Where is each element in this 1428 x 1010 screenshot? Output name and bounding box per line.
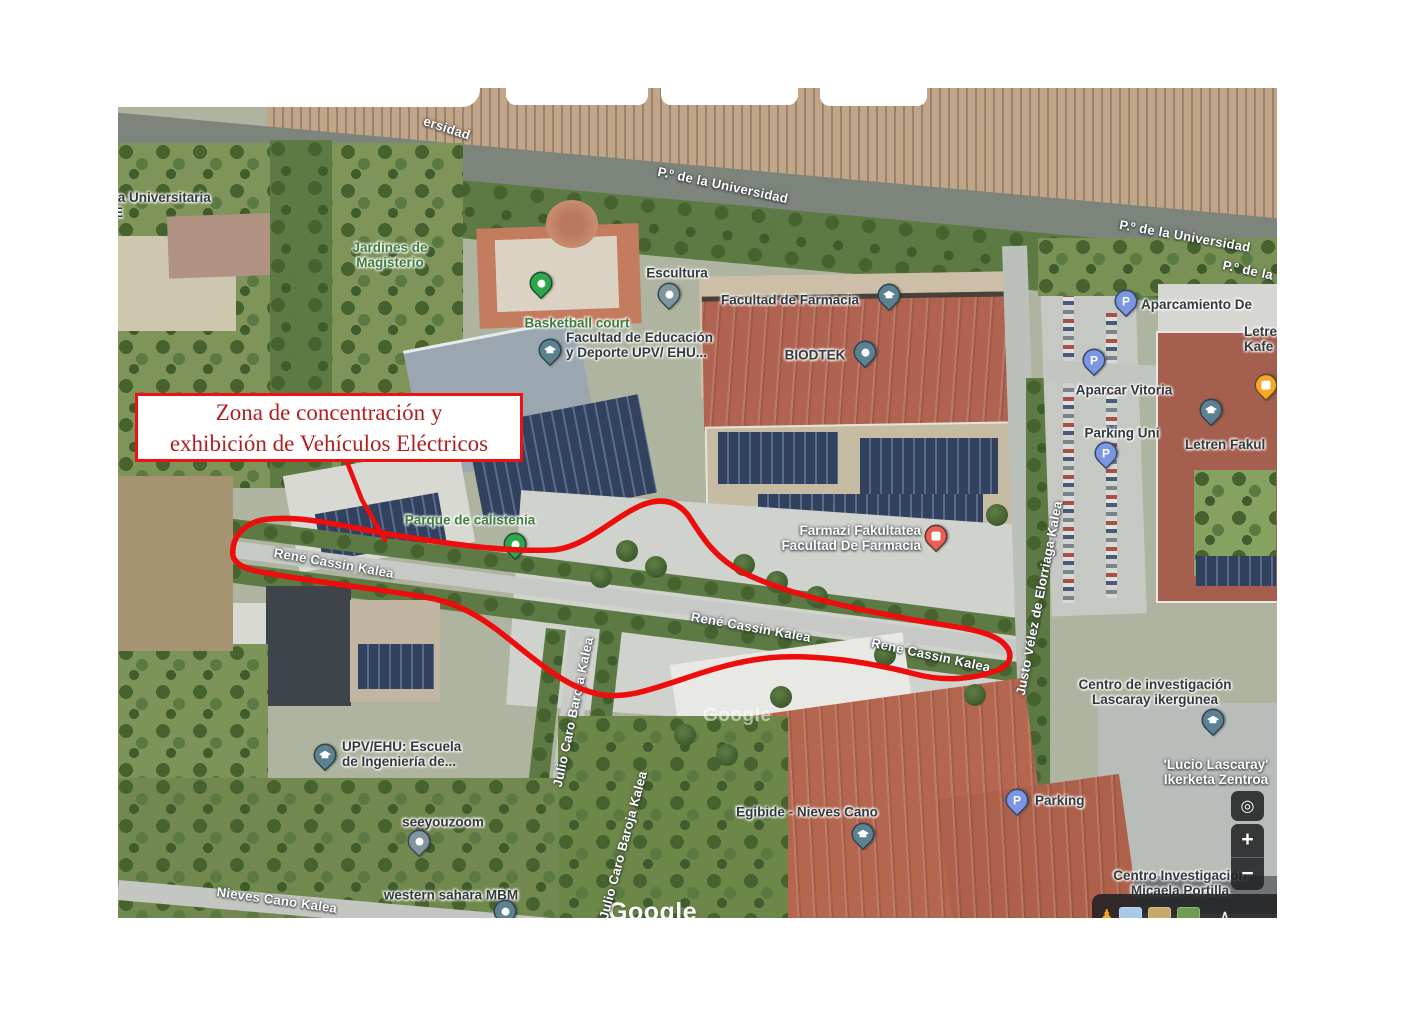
poi-line: Farmazi Fakultatea: [721, 523, 921, 538]
parking-pin-parking[interactable]: P: [1001, 784, 1034, 817]
poi-label-escultura[interactable]: Escultura: [646, 266, 708, 281]
education-pin-upv[interactable]: [309, 739, 342, 772]
poi-line: y Deporte UPV/ EHU...: [566, 345, 713, 360]
poi-line: de Ingeniería de...: [342, 754, 461, 769]
top-cutout-strip: [118, 88, 480, 107]
poi-line: UPV/EHU: Escuela: [342, 739, 461, 754]
imagery-thumbnail-2[interactable]: [1148, 907, 1171, 919]
poi-label-lucio-lascaray[interactable]: 'Lucio Lascaray' Ikerketa Zentroa: [1164, 757, 1269, 787]
poi-line: Letre: [1244, 324, 1277, 339]
parking-pin-aparcamiento[interactable]: P: [1110, 285, 1143, 318]
upv-solar: [358, 644, 434, 689]
annotation-box: Zona de concentración y exhibición de Ve…: [135, 393, 523, 462]
my-location-button[interactable]: ◎: [1231, 791, 1264, 821]
tree: [733, 554, 755, 576]
poi-line: Kafe: [1244, 339, 1277, 354]
top-cutout-tab: [820, 88, 927, 106]
annotation-line-1: Zona de concentración y: [216, 397, 443, 428]
solar-panel-1: [718, 432, 838, 484]
parking-icon: P: [1095, 442, 1118, 465]
zoom-out-button[interactable]: −: [1231, 857, 1264, 891]
poi-line: Facultad de Educación: [566, 330, 713, 345]
parking-pin-parking-uni[interactable]: P: [1090, 437, 1123, 470]
letren-solar: [1196, 556, 1276, 586]
tree: [770, 686, 792, 708]
pharmacy-pin-farmazi[interactable]: [920, 520, 953, 553]
poi-label-universitaria[interactable]: ia Universitaria E: [118, 190, 211, 220]
park-pin-basketball[interactable]: [525, 267, 558, 300]
zoom-controls: + −: [1231, 824, 1264, 890]
poi-label-basketball[interactable]: Basketball court: [524, 316, 629, 331]
brown-field-left: [118, 476, 233, 651]
poi-label-upv[interactable]: UPV/EHU: Escuela de Ingeniería de...: [342, 739, 461, 769]
parking-icon: P: [1083, 349, 1106, 372]
poi-pin-escultura[interactable]: [653, 278, 686, 311]
parking-icon: P: [1006, 789, 1029, 812]
cafe-pin-letren-kafetegia[interactable]: [1250, 369, 1277, 402]
poi-line: Centro Investigación: [1113, 868, 1247, 883]
poi-line: E: [118, 205, 211, 220]
poi-label-aparcar-vitoria[interactable]: Aparcar Vitoria: [1076, 383, 1173, 398]
education-pin-letren[interactable]: [1195, 394, 1228, 427]
parking-icon: P: [1115, 290, 1138, 313]
tree: [964, 684, 986, 706]
annotation-line-2: exhibición de Vehículos Eléctricos: [170, 428, 488, 459]
tree: [986, 504, 1008, 526]
poi-label-jardines[interactable]: Jardines de Magisterio: [352, 240, 427, 270]
poi-label-seeyouzoom[interactable]: seeyouzoom: [402, 815, 484, 830]
car-row-1: [1063, 293, 1074, 603]
poi-label-lascaray[interactable]: Centro de investigación Lascaray ikergun…: [1078, 677, 1231, 707]
zoom-in-button[interactable]: +: [1231, 824, 1264, 857]
poi-label-letren-fakultatea[interactable]: Letren Fakul: [1185, 437, 1265, 452]
poi-label-egibide[interactable]: Egibide - Nieves Cano: [736, 805, 878, 820]
poi-label-educacion[interactable]: Facultad de Educación y Deporte UPV/ EHU…: [566, 330, 713, 360]
poi-line: Facultad De Farmacia: [721, 538, 921, 553]
education-pin-lascaray[interactable]: [1197, 704, 1230, 737]
poi-pin-seeyouzoom[interactable]: [403, 825, 436, 858]
education-pin-farmacia[interactable]: [873, 279, 906, 312]
poi-line: Jardines de: [352, 240, 427, 255]
poi-label-biodtek[interactable]: BIODTEK: [785, 348, 846, 363]
collapse-chevron-icon[interactable]: ∧: [1220, 908, 1229, 918]
screenshot-page: ersidad P.º de la Universidad P.º de la …: [0, 0, 1428, 1010]
parking-pin-aparcar-vitoria[interactable]: P: [1078, 344, 1111, 377]
imagery-thumbnail-1[interactable]: [1119, 907, 1142, 919]
poi-label-aparcamiento[interactable]: Aparcamiento De: [1141, 297, 1252, 312]
google-watermark-center: Google: [703, 705, 771, 727]
tree: [590, 566, 612, 588]
basketball-court-inner: [495, 236, 619, 312]
poi-label-calistenia[interactable]: Parque de calistenia: [405, 513, 536, 528]
playground-circle: [546, 200, 598, 248]
poi-label-parking[interactable]: Parking: [1035, 793, 1085, 808]
map-canvas[interactable]: ersidad P.º de la Universidad P.º de la …: [118, 88, 1277, 918]
tree: [766, 571, 788, 593]
imagery-toolbar: ♟ ∧: [1092, 894, 1277, 918]
poi-line: Centro de investigación: [1078, 677, 1231, 692]
google-watermark-bottom: Google: [608, 898, 697, 918]
my-location-icon: ◎: [1241, 796, 1255, 816]
upv-dark-building: [266, 586, 351, 706]
tree: [616, 540, 638, 562]
poi-line: Lascaray ikergunea: [1078, 692, 1231, 707]
tree: [716, 744, 738, 766]
top-cutout-tab: [661, 88, 798, 105]
imagery-thumbnail-3[interactable]: [1177, 907, 1200, 919]
park-pin-calistenia[interactable]: [499, 528, 532, 561]
poi-pin-biodtek[interactable]: [849, 336, 882, 369]
education-pin-egibide[interactable]: [847, 818, 880, 851]
poi-label-letren-kafe[interactable]: Letre Kafe: [1244, 324, 1277, 354]
tree: [806, 586, 828, 608]
pegman-icon[interactable]: ♟: [1100, 908, 1113, 919]
poi-line: 'Lucio Lascaray': [1164, 757, 1269, 772]
education-pin-educacion[interactable]: [534, 334, 567, 367]
poi-line: Ikerketa Zentroa: [1164, 772, 1269, 787]
solar-panel-2: [860, 438, 998, 494]
tree: [674, 724, 696, 746]
poi-label-parking-uni[interactable]: Parking Uni: [1084, 426, 1159, 441]
poi-line: ia Universitaria: [118, 190, 211, 205]
poi-line: Magisterio: [352, 255, 427, 270]
poi-label-facultad-farmacia[interactable]: Facultad de Farmacia: [721, 293, 859, 308]
top-cutout-tab: [506, 88, 648, 105]
poi-label-farmazi[interactable]: Farmazi Fakultatea Facultad De Farmacia: [721, 523, 921, 553]
tree: [645, 556, 667, 578]
